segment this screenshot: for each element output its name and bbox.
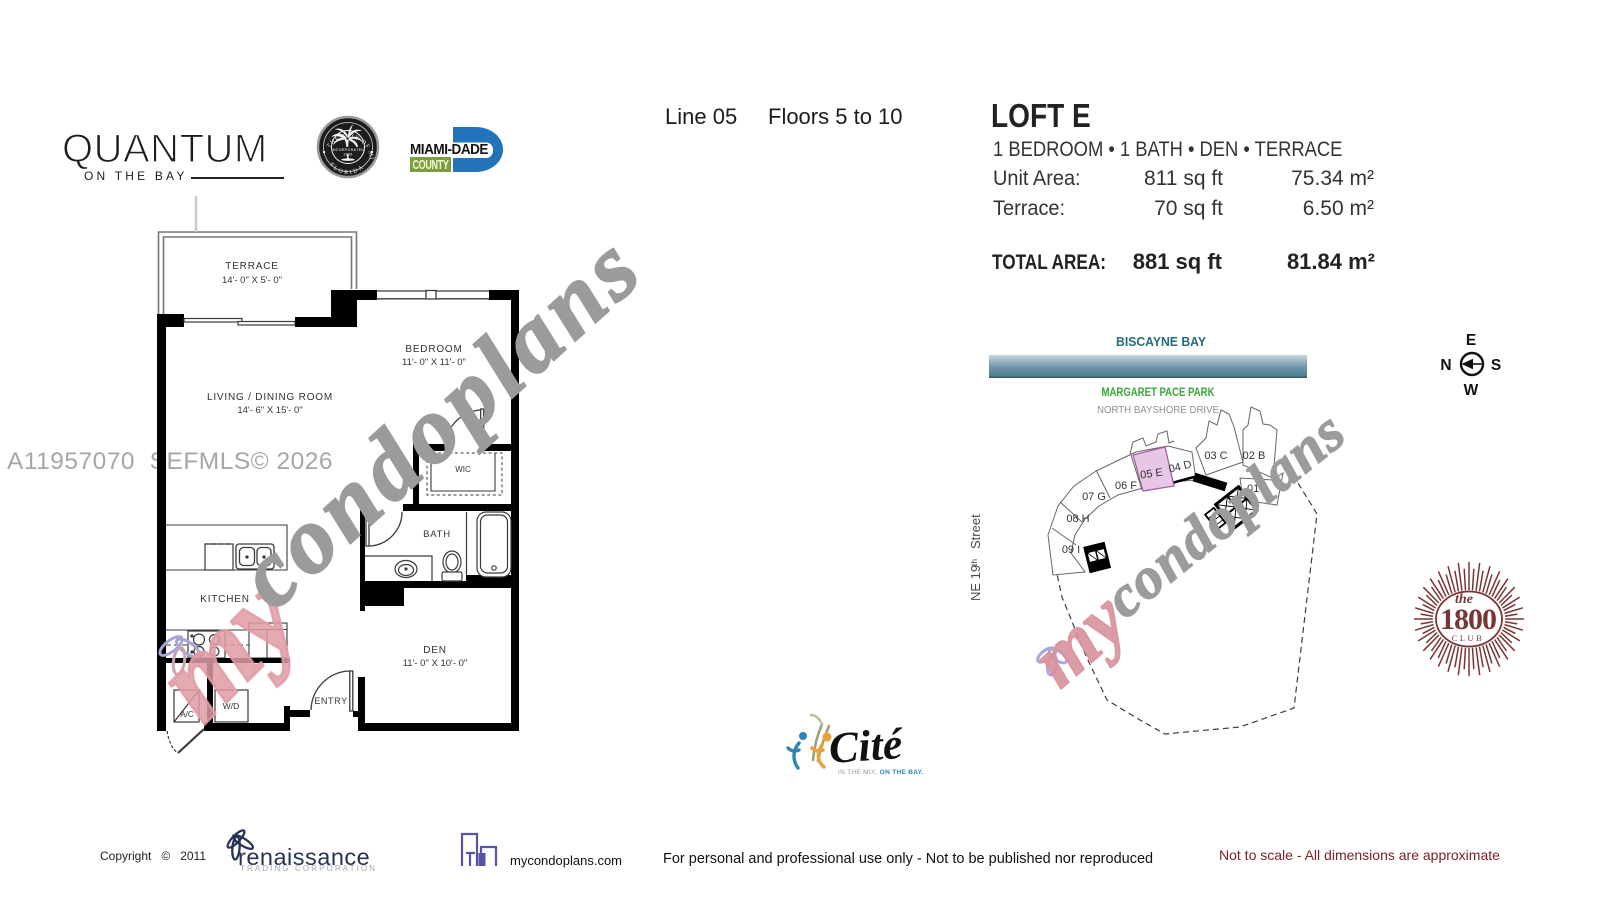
svg-text:ENTRY: ENTRY bbox=[314, 696, 347, 706]
svg-text:MIAMI-DADE: MIAMI-DADE bbox=[410, 142, 489, 158]
svg-text:BATH: BATH bbox=[423, 529, 451, 540]
svg-text:1896: 1896 bbox=[343, 153, 352, 157]
svg-text:LIVING / DINING ROOM: LIVING / DINING ROOM bbox=[207, 392, 333, 403]
svg-text:Cité: Cité bbox=[827, 719, 905, 773]
svg-text:06 F: 06 F bbox=[1115, 480, 1137, 492]
svg-text:14'- 6" X 15'- 0": 14'- 6" X 15'- 0" bbox=[237, 405, 302, 416]
svg-text:N: N bbox=[1440, 357, 1451, 374]
svg-text:INCORPORATED: INCORPORATED bbox=[332, 148, 365, 152]
svg-text:NORTH BAYSHORE DRIVE: NORTH BAYSHORE DRIVE bbox=[1097, 404, 1219, 416]
svg-text:MARGARET PACE PARK: MARGARET PACE PARK bbox=[1102, 387, 1216, 399]
svg-text:TERRACE: TERRACE bbox=[225, 261, 278, 272]
svg-text:S: S bbox=[1491, 357, 1501, 374]
svg-text:14'- 0" X 5'- 0": 14'- 0" X 5'- 0" bbox=[222, 275, 282, 286]
svg-text:E: E bbox=[1466, 332, 1476, 349]
svg-text:07 G: 07 G bbox=[1082, 491, 1106, 503]
svg-text:condoplans: condoplans bbox=[218, 213, 662, 628]
svg-text:COUNTY: COUNTY bbox=[413, 157, 450, 172]
svg-text:A11957070 SEFMLS© 2026: A11957070 SEFMLS© 2026 bbox=[7, 448, 333, 475]
svg-text:CLUB: CLUB bbox=[1452, 633, 1485, 643]
svg-text:08 H: 08 H bbox=[1066, 513, 1089, 525]
svg-text:Street: Street bbox=[968, 514, 983, 549]
svg-text:03 C: 03 C bbox=[1204, 450, 1227, 462]
svg-text:W: W bbox=[1464, 382, 1479, 399]
svg-text:th: th bbox=[969, 559, 979, 566]
svg-text:IN THE MIX, ON THE BAY.: IN THE MIX, ON THE BAY. bbox=[838, 769, 924, 776]
svg-text:NE 19: NE 19 bbox=[968, 565, 983, 601]
svg-text:11'- 0" X 10'- 0": 11'- 0" X 10'- 0" bbox=[403, 658, 468, 669]
svg-text:09 I: 09 I bbox=[1062, 544, 1080, 556]
svg-text:BISCAYNE BAY: BISCAYNE BAY bbox=[1116, 335, 1207, 349]
svg-text:1800: 1800 bbox=[1440, 603, 1496, 636]
svg-text:DEN: DEN bbox=[423, 645, 447, 656]
